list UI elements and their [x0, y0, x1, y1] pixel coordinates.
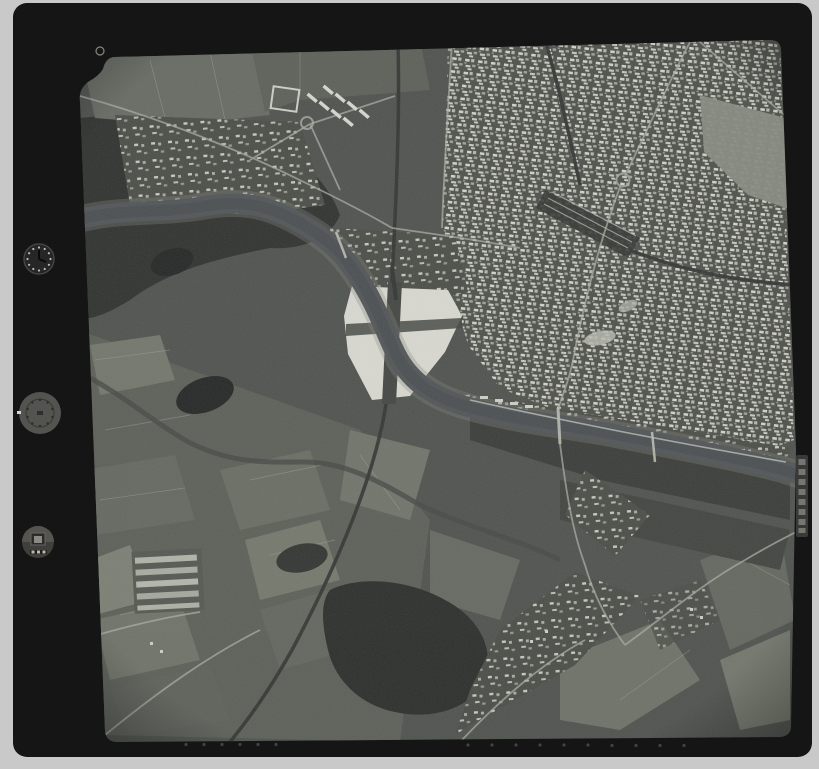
scanner-bed: [0, 0, 819, 769]
scanned-film-frame: [0, 0, 819, 769]
counter-digit-block: [34, 536, 42, 543]
edge-label: [796, 455, 808, 537]
clock-dial-icon: [23, 243, 55, 275]
vignette: [60, 25, 819, 755]
frame-counter-icon: [22, 526, 54, 558]
aerial-photo: [60, 24, 819, 755]
counter-readout-digits: [32, 551, 46, 554]
altimeter-index-mark: [17, 411, 21, 414]
